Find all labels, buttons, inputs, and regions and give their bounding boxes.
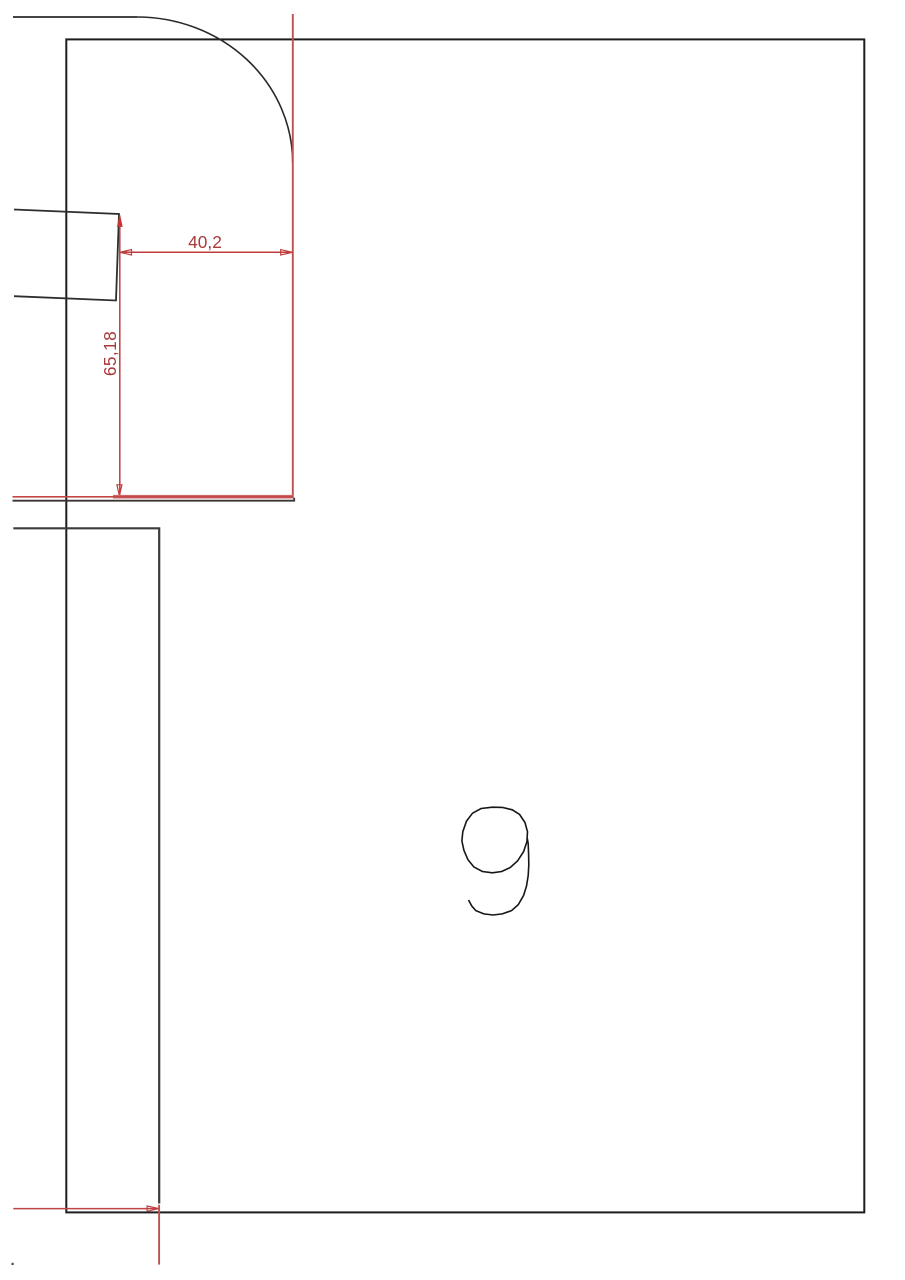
svg-text:65,18: 65,18 — [100, 331, 120, 376]
svg-text:40,2: 40,2 — [188, 232, 222, 252]
